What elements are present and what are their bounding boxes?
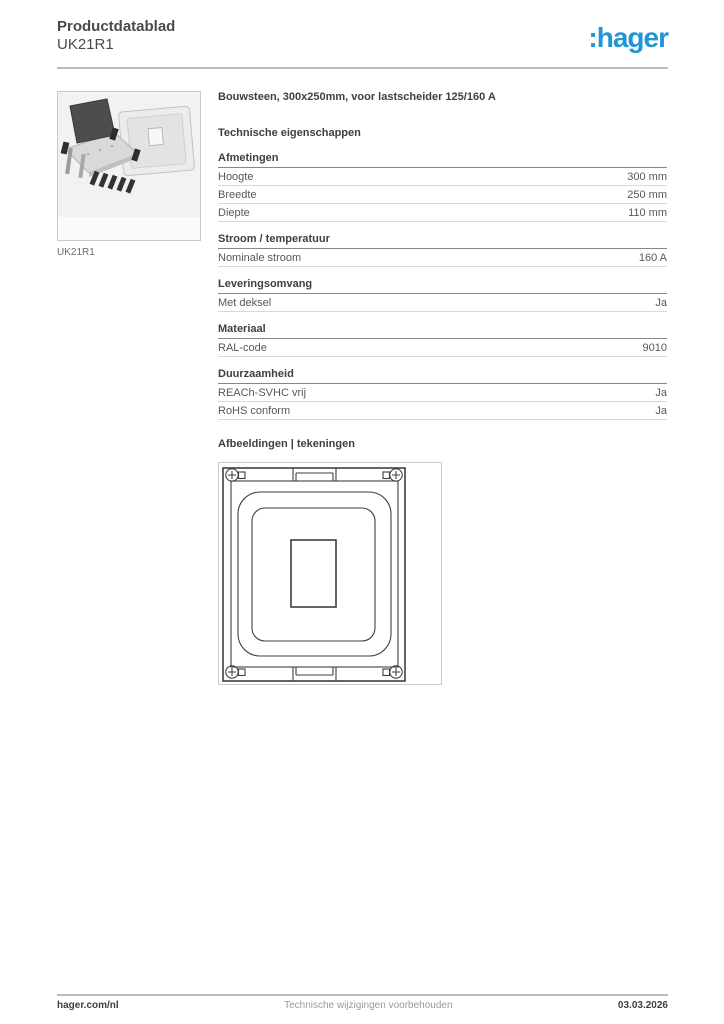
spec-label: Nominale stroom (218, 252, 301, 264)
section-title-drawings: Afbeeldingen | tekeningen (218, 438, 667, 450)
drawing-inner-frame (231, 481, 398, 667)
spec-label: Met deksel (218, 297, 271, 309)
spec-value: 9010 (643, 342, 667, 354)
footer-website-link[interactable]: hager.com/nl (57, 1000, 119, 1011)
dark-panel (70, 99, 115, 143)
drawing-rounded-outer (238, 492, 391, 656)
spec-row: Diepte110 mm (218, 204, 667, 222)
main-content: Bouwsteen, 300x250mm, voor lastscheider … (218, 91, 667, 685)
spec-label: Breedte (218, 189, 257, 201)
product-title: Bouwsteen, 300x250mm, voor lastscheider … (218, 91, 667, 104)
spec-row: RoHS conformJa (218, 402, 667, 420)
spec-value: Ja (655, 405, 667, 417)
spec-group-title: Stroom / temperatuur (218, 233, 667, 249)
datasheet-page: Productdatablad UK21R1 :hager (0, 0, 724, 1024)
spec-row: Nominale stroom160 A (218, 249, 667, 267)
product-code: UK21R1 (57, 36, 175, 54)
drawing-centre-window (291, 540, 336, 607)
spec-row: Met dekselJa (218, 294, 667, 312)
technical-drawing (218, 462, 442, 685)
spec-group-title: Leveringsomvang (218, 278, 667, 294)
header: Productdatablad UK21R1 :hager (57, 17, 668, 54)
spec-value: Ja (655, 387, 667, 399)
footer-divider (57, 994, 668, 996)
spec-row: RAL-code9010 (218, 339, 667, 357)
spec-group: MateriaalRAL-code9010 (218, 323, 667, 357)
screw-bottom-left (226, 666, 245, 678)
spec-row: Hoogte300 mm (218, 168, 667, 186)
spec-groups: AfmetingenHoogte300 mmBreedte250 mmDiept… (218, 152, 667, 420)
product-photo-caption: UK21R1 (57, 247, 202, 258)
cover-frame (118, 106, 194, 176)
spec-group: Stroom / temperatuurNominale stroom160 A (218, 233, 667, 267)
product-photo-illustration (58, 92, 200, 240)
section-title-specs: Technische eigenschappen (218, 127, 667, 139)
product-photo (57, 91, 201, 241)
spec-value: Ja (655, 297, 667, 309)
spec-value: 250 mm (627, 189, 667, 201)
spec-value: 300 mm (627, 171, 667, 183)
spec-group: AfmetingenHoogte300 mmBreedte250 mmDiept… (218, 152, 667, 222)
technical-drawing-svg (219, 463, 441, 684)
spec-label: REACh-SVHC vrij (218, 387, 306, 399)
header-divider (57, 67, 668, 69)
spec-row: REACh-SVHC vrijJa (218, 384, 667, 402)
drawing-rounded-inner (252, 508, 375, 641)
spec-group-title: Duurzaamheid (218, 368, 667, 384)
spec-value: 160 A (639, 252, 667, 264)
footer-date: 03.03.2026 (618, 1000, 668, 1011)
spec-value: 110 mm (628, 207, 667, 219)
product-image-column: UK21R1 (57, 91, 202, 258)
spec-label: RAL-code (218, 342, 267, 354)
screw-bottom-right (383, 666, 402, 678)
spec-row: Breedte250 mm (218, 186, 667, 204)
footer: hager.com/nl Technische wijzigingen voor… (57, 1000, 668, 1011)
bottom-tab (293, 667, 336, 681)
top-tab (293, 468, 336, 481)
header-titles: Productdatablad UK21R1 (57, 17, 175, 54)
hager-logo: :hager (588, 25, 668, 51)
spec-group-title: Materiaal (218, 323, 667, 339)
spec-label: RoHS conform (218, 405, 290, 417)
spec-label: Diepte (218, 207, 250, 219)
footer-disclaimer: Technische wijzigingen voorbehouden (284, 1000, 452, 1011)
screw-top-left (226, 469, 245, 481)
document-type: Productdatablad (57, 17, 175, 36)
spec-group: DuurzaamheidREACh-SVHC vrijJaRoHS confor… (218, 368, 667, 420)
spec-group: LeveringsomvangMet dekselJa (218, 278, 667, 312)
drawing-outer-frame (223, 468, 405, 681)
spec-label: Hoogte (218, 171, 253, 183)
screw-top-right (383, 469, 402, 481)
spec-group-title: Afmetingen (218, 152, 667, 168)
